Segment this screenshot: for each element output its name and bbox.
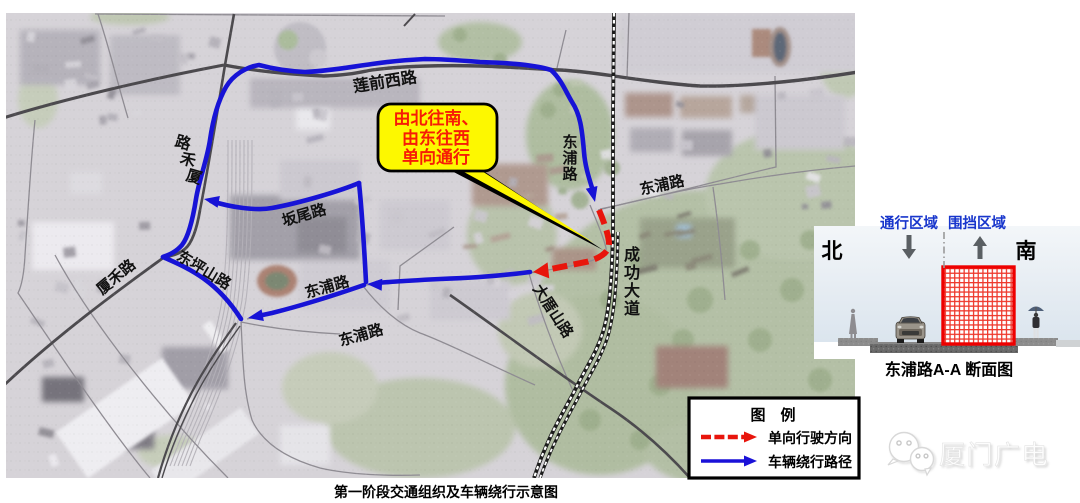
svg-text:由东往西: 由东往西 [402, 128, 470, 148]
svg-text:东浦路A-A 断面图: 东浦路A-A 断面图 [885, 360, 1013, 379]
svg-text:大: 大 [624, 281, 640, 300]
svg-text:南: 南 [1016, 239, 1037, 263]
svg-text:北: 北 [822, 240, 843, 263]
svg-text:单向行驶方向: 单向行驶方向 [768, 430, 852, 446]
svg-text:东: 东 [562, 133, 577, 151]
svg-text:由北往南、: 由北往南、 [394, 108, 479, 128]
svg-text:路: 路 [562, 165, 578, 183]
svg-text:单向通行: 单向通行 [402, 147, 470, 167]
svg-text:成: 成 [624, 245, 640, 264]
svg-text:第一阶段交通组织及车辆绕行示意图: 第一阶段交通组织及车辆绕行示意图 [334, 484, 558, 500]
svg-text:图 例: 图 例 [750, 406, 795, 424]
svg-text:车辆绕行路径: 车辆绕行路径 [768, 454, 852, 470]
svg-text:浦: 浦 [562, 149, 577, 167]
svg-text:功: 功 [624, 264, 640, 282]
svg-text:道: 道 [624, 299, 640, 318]
svg-text:厦门广电: 厦门广电 [939, 440, 1049, 470]
svg-text:通行区域: 通行区域 [880, 214, 938, 232]
svg-text:围挡区域: 围挡区域 [948, 214, 1006, 232]
